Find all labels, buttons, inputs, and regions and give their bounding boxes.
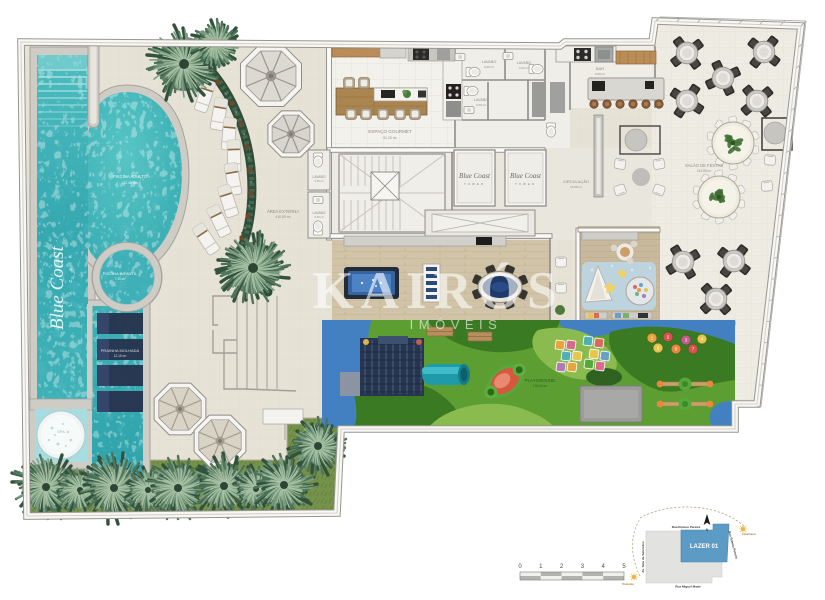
svg-text:51.25 m²: 51.25 m²: [383, 136, 397, 140]
svg-text:Tramonto: Tramonto: [622, 582, 634, 586]
svg-text:Rua Romeu Pereira: Rua Romeu Pereira: [672, 525, 701, 529]
svg-text:24.60 m²: 24.60 m²: [570, 185, 582, 189]
svg-text:SALÃO DE FESTAS: SALÃO DE FESTAS: [685, 163, 723, 168]
svg-text:9.80 m²: 9.80 m²: [595, 72, 605, 76]
svg-text:N: N: [706, 528, 709, 532]
svg-text:ÁREA EXTERNA: ÁREA EXTERNA: [267, 209, 299, 214]
svg-text:KAIRÓS: KAIRÓS: [312, 262, 563, 320]
svg-text:LAVABO: LAVABO: [474, 98, 489, 102]
svg-text:ESPAÇO GOURMET: ESPAÇO GOURMET: [368, 129, 412, 134]
svg-text:Blue Coast: Blue Coast: [510, 172, 542, 180]
svg-text:Blue Coast: Blue Coast: [459, 172, 491, 180]
svg-text:SPA: SPA: [57, 429, 65, 434]
svg-text:3.20 m²: 3.20 m²: [519, 66, 529, 70]
svg-text:3.20 m²: 3.20 m²: [476, 103, 486, 107]
svg-text:Amanhecer: Amanhecer: [742, 532, 756, 536]
svg-text:CIRCULAÇÃO: CIRCULAÇÃO: [563, 179, 589, 184]
svg-text:4.15 m²: 4.15 m²: [314, 215, 324, 219]
svg-text:7.30 m²: 7.30 m²: [115, 277, 126, 281]
svg-text:LAZER 01: LAZER 01: [690, 544, 719, 550]
svg-text:410.80 m²: 410.80 m²: [275, 215, 291, 219]
svg-text:PISCINA ADULTO: PISCINA ADULTO: [113, 174, 148, 179]
svg-text:3.20 m²: 3.20 m²: [484, 65, 494, 69]
svg-text:LAVABO: LAVABO: [482, 60, 497, 64]
svg-text:PLAYGROUND: PLAYGROUND: [525, 378, 555, 383]
svg-text:12.15 m²: 12.15 m²: [114, 354, 127, 358]
svg-text:PISCINA INFANTIL: PISCINA INFANTIL: [103, 271, 138, 276]
svg-text:LAVABO: LAVABO: [517, 61, 532, 65]
svg-text:IMÓVEIS: IMÓVEIS: [410, 317, 503, 332]
svg-text:PRAINHA MOLHADA: PRAINHA MOLHADA: [101, 348, 140, 353]
svg-text:Blue Coast: Blue Coast: [47, 245, 68, 330]
svg-text:TOWER: TOWER: [464, 182, 485, 186]
svg-text:L A Z E R: L A Z E R: [68, 251, 73, 306]
svg-text:214.95 m²: 214.95 m²: [697, 169, 711, 173]
svg-text:32.45 m²: 32.45 m²: [123, 181, 137, 185]
svg-text:BAR: BAR: [596, 66, 604, 71]
svg-text:176.60 m²: 176.60 m²: [533, 384, 547, 388]
svg-text:TOWER: TOWER: [515, 182, 536, 186]
svg-text:4.15 m²: 4.15 m²: [314, 179, 324, 183]
svg-text:Av. Sete de Setembro: Av. Sete de Setembro: [641, 541, 645, 573]
svg-text:Rua Miguel Matte: Rua Miguel Matte: [675, 585, 701, 589]
